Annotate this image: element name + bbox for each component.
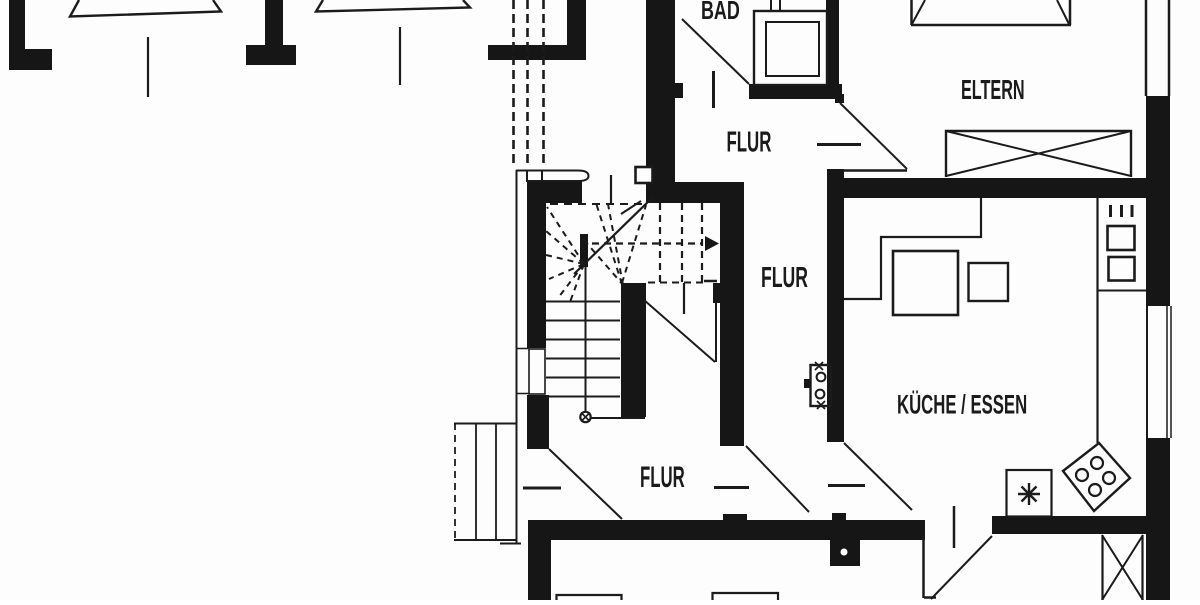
svg-text:BAD: BAD [701,0,740,25]
svg-text:KÜCHE / ESSEN: KÜCHE / ESSEN [897,389,1027,419]
svg-text:FLUR: FLUR [761,262,808,295]
svg-text:FLUR: FLUR [726,127,771,159]
svg-text:FLUR: FLUR [640,461,685,494]
svg-text:ELTERN: ELTERN [961,75,1025,105]
